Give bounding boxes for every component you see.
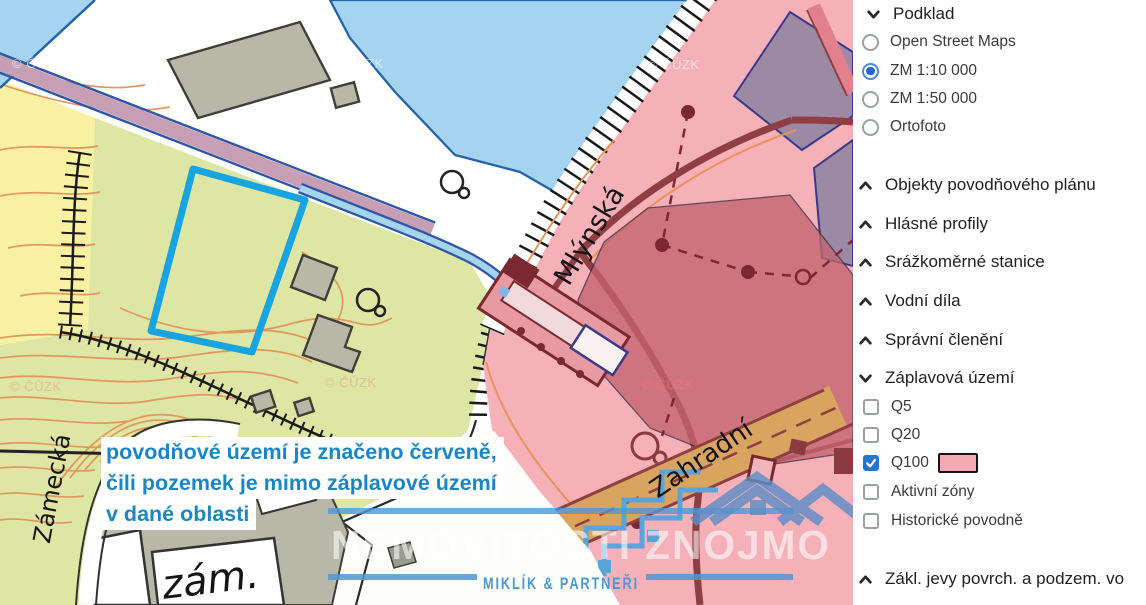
checkbox-checked-icon[interactable]: [863, 455, 879, 471]
cuzk-watermark: © ČÚZK: [332, 56, 384, 71]
section-zakl-jevy[interactable]: Zákl. jevy povrch. a podzem. vo: [858, 566, 1124, 592]
chevron-down-icon: [866, 7, 881, 22]
watermark-line-right: [646, 574, 793, 580]
watermark-title: NEMOVITOSTI ZNOJMO: [331, 522, 831, 568]
chevron-up-icon: [858, 333, 873, 348]
section-label: Podklad: [893, 4, 954, 24]
section-srazkomerne-stanice[interactable]: Srážkoměrné stanice: [858, 249, 1045, 275]
roof-chimney: [750, 500, 766, 515]
watermark-line-left: [328, 574, 477, 580]
section-spravni-cleneni[interactable]: Správní členění: [858, 327, 1003, 353]
radio-icon[interactable]: [862, 34, 879, 51]
map-container[interactable]: Mlýnská Zahradní Zámecká zám. © ČÚZK © Č…: [0, 0, 853, 605]
flood-plan-app: Mlýnská Zahradní Zámecká zám. © ČÚZK © Č…: [0, 0, 1146, 605]
checkbox-row-q20[interactable]: Q20: [863, 422, 920, 448]
checkbox-row-historicke-povodne[interactable]: Historické povodně: [863, 508, 1023, 534]
section-objekty-povodnoveho-planu[interactable]: Objekty povodňového plánu: [858, 172, 1096, 198]
section-label: Správní členění: [885, 330, 1003, 350]
map-canvas[interactable]: Mlýnská Zahradní Zámecká zám. © ČÚZK © Č…: [0, 0, 853, 605]
radio-icon[interactable]: [862, 91, 879, 108]
radio-zm-1-10000[interactable]: ZM 1:10 000: [862, 58, 977, 84]
chevron-down-icon: [858, 371, 873, 386]
q100-color-swatch: [938, 453, 978, 473]
radio-selected-icon[interactable]: [862, 63, 879, 80]
layer-sidebar: Podklad Open Street Maps ZM 1:10 000 ZM …: [853, 0, 1146, 605]
chevron-up-icon: [858, 178, 873, 193]
checkbox-icon[interactable]: [863, 427, 879, 443]
section-hlasne-profily[interactable]: Hlásné profily: [858, 211, 988, 237]
checkbox-row-q5[interactable]: Q5: [863, 394, 912, 420]
section-label: Zákl. jevy povrch. a podzem. vo: [885, 569, 1124, 589]
checkbox-icon[interactable]: [863, 399, 879, 415]
checkbox-icon[interactable]: [863, 513, 879, 529]
cuzk-watermark: © ČÚZK: [648, 57, 700, 72]
checkbox-row-aktivni-zony[interactable]: Aktivní zóny: [863, 479, 975, 505]
radio-zm-1-50000[interactable]: ZM 1:50 000: [862, 86, 977, 112]
radio-ortofoto[interactable]: Ortofoto: [862, 114, 946, 140]
radio-open-street-maps[interactable]: Open Street Maps: [862, 29, 1016, 55]
chevron-up-icon: [858, 255, 873, 270]
section-label: Hlásné profily: [885, 214, 988, 234]
section-label: Vodní díla: [885, 291, 961, 311]
section-zaplavova-uzemi[interactable]: Záplavová území: [858, 365, 1014, 391]
chevron-up-icon: [858, 217, 873, 232]
checkbox-row-q100[interactable]: Q100: [863, 450, 978, 476]
cuzk-watermark: © ČÚZK: [642, 377, 694, 392]
checkbox-icon[interactable]: [863, 484, 879, 500]
watermark-subtitle: MIKLÍK & PARTNEŘI: [483, 574, 639, 593]
radio-icon[interactable]: [862, 119, 879, 136]
section-label: Záplavová území: [885, 368, 1014, 388]
section-label: Objekty povodňového plánu: [885, 175, 1096, 195]
section-label: Srážkoměrné stanice: [885, 252, 1045, 272]
cuzk-watermark: © ČÚZK: [325, 375, 377, 390]
chevron-up-icon: [858, 572, 873, 587]
cuzk-watermark: © ČÚZK: [12, 56, 64, 71]
section-vodni-dila[interactable]: Vodní díla: [858, 288, 961, 314]
chevron-up-icon: [858, 294, 873, 309]
section-podklad[interactable]: Podklad: [866, 1, 954, 27]
cuzk-watermark: © ČÚZK: [10, 379, 62, 394]
